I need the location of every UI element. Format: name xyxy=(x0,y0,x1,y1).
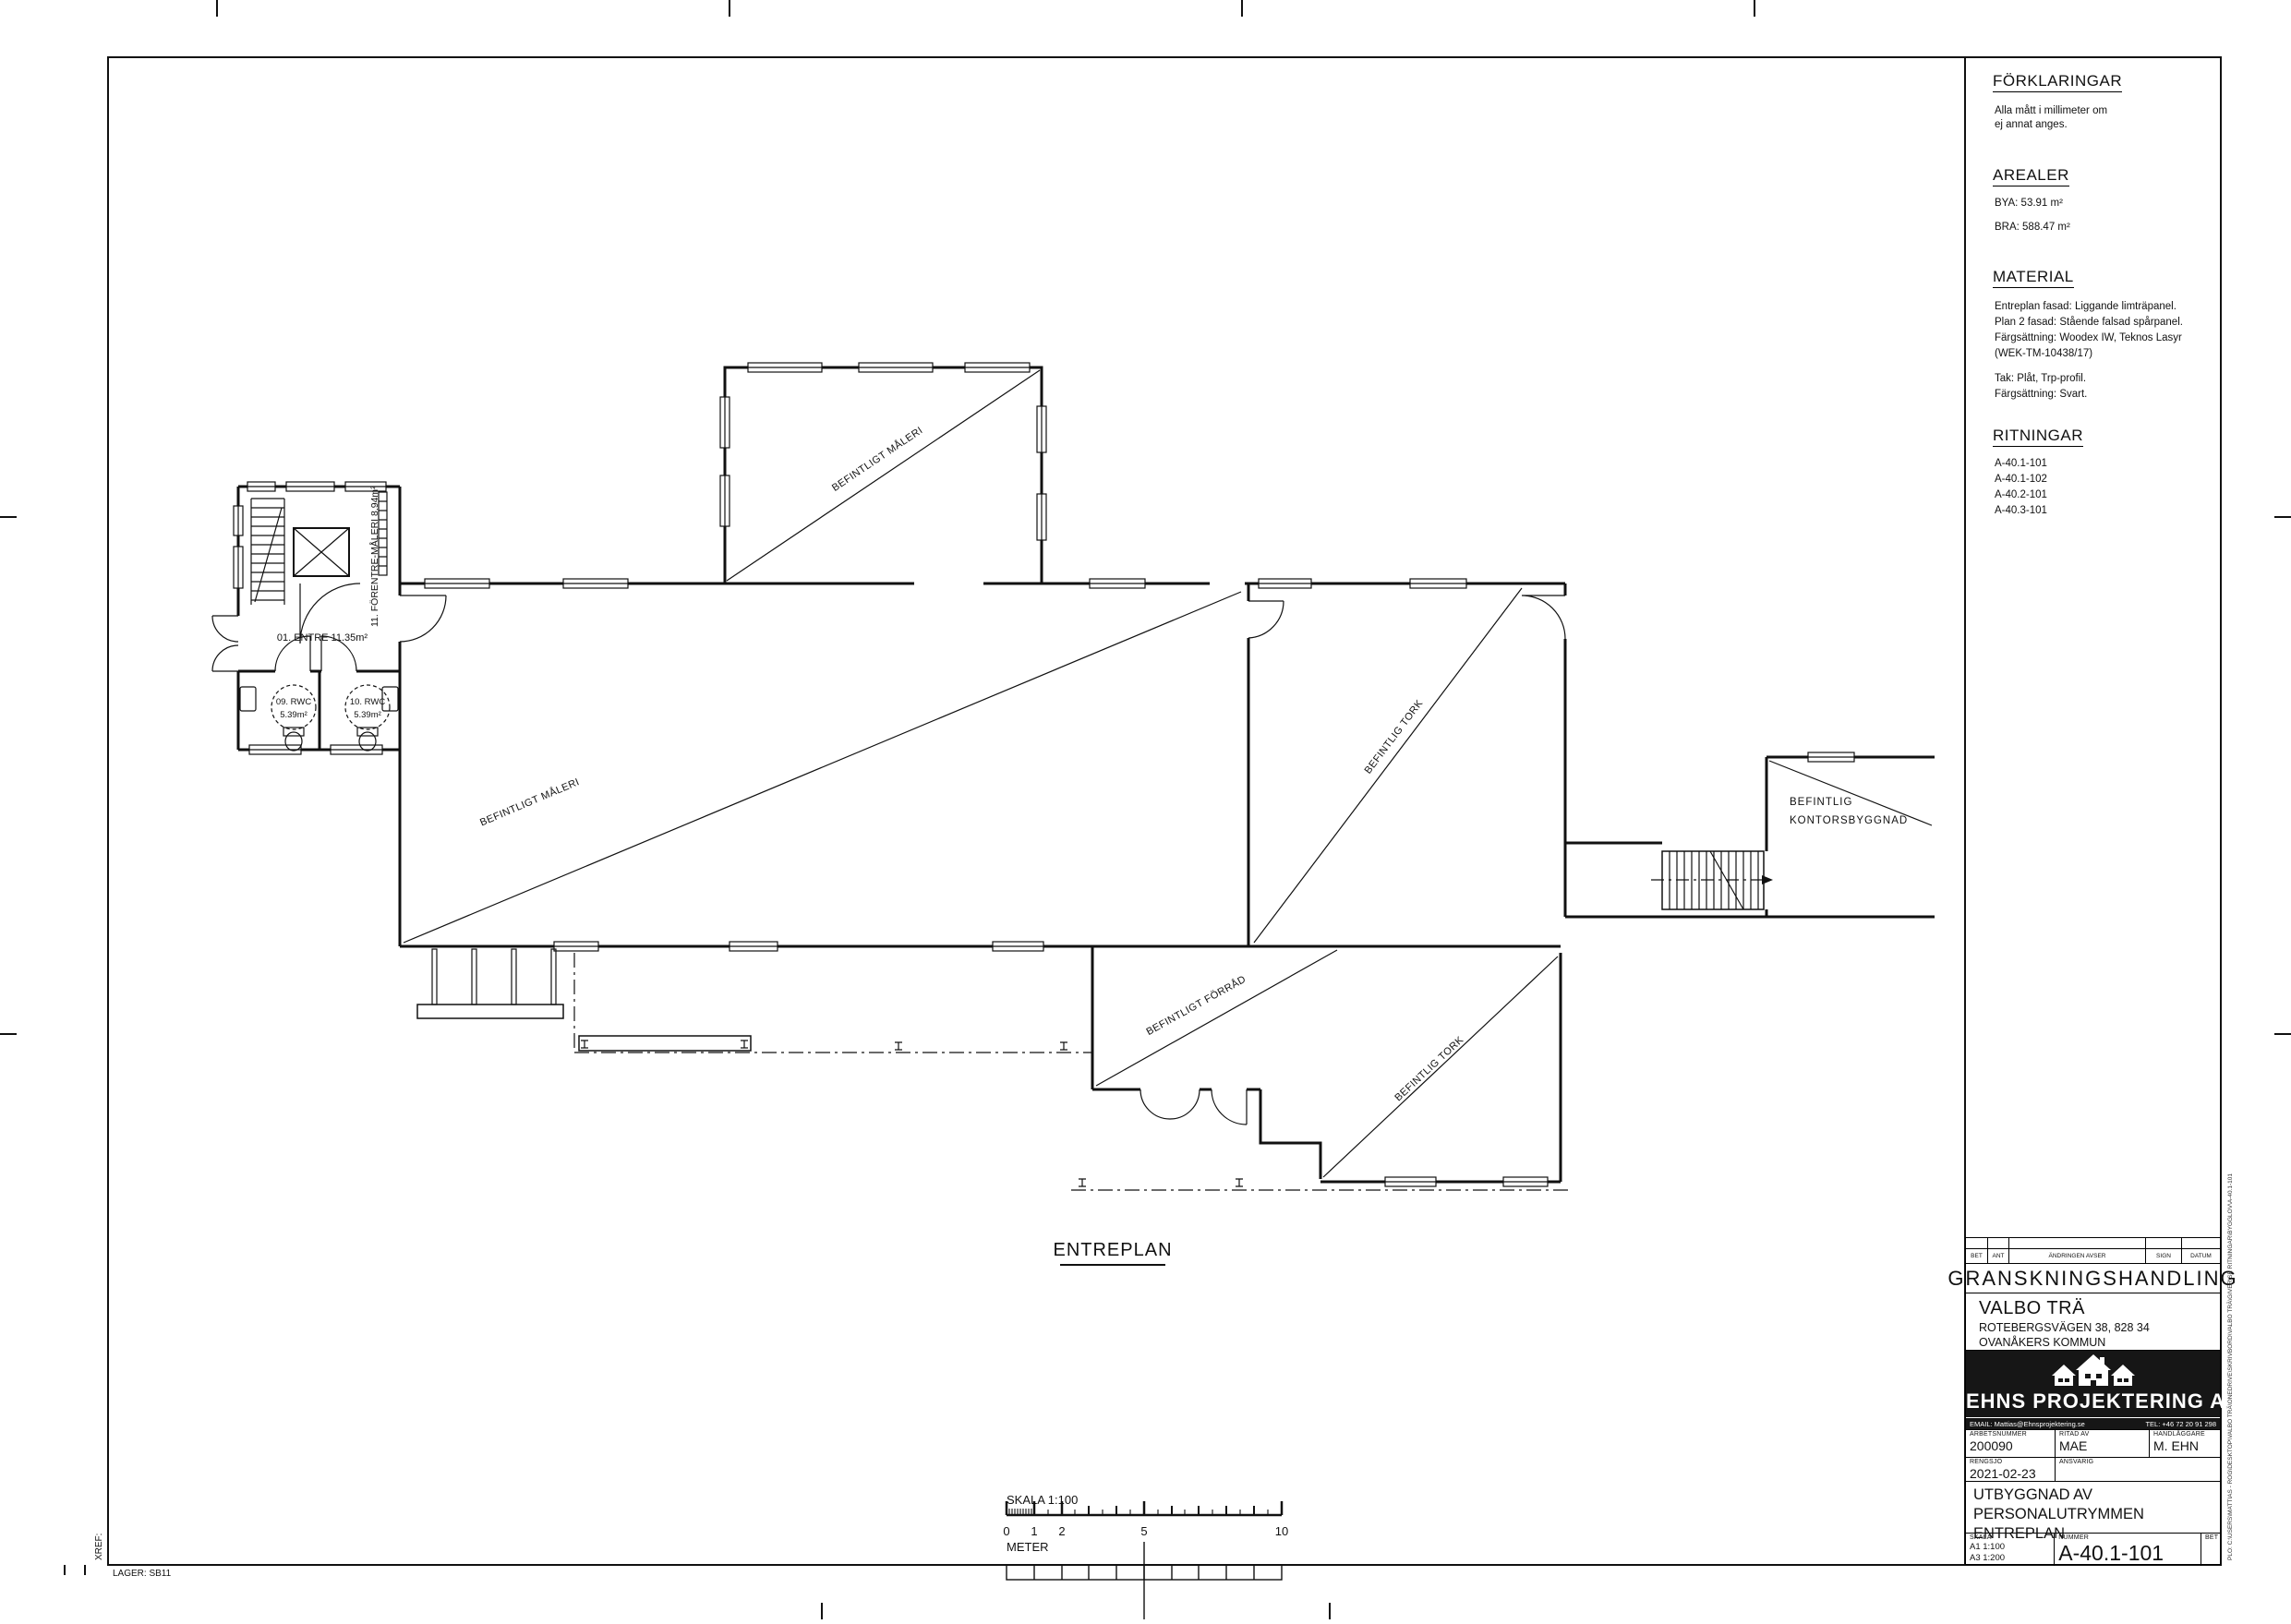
status-stamp: GRANSKNINGSHANDLING xyxy=(1966,1264,2220,1293)
legend-note-2: ej annat anges. xyxy=(1995,119,2068,130)
revision-header: BET ANT ÄNDRINGEN AVSER SIGN DATUM xyxy=(1966,1249,2220,1264)
scale-tick-5: 5 xyxy=(1140,1524,1147,1538)
company-name: EHNS PROJEKTERING AB xyxy=(1966,1389,2220,1413)
scale-tick-0: 0 xyxy=(1003,1524,1009,1538)
arbetsnummer-label: ARBETSNUMMER xyxy=(1970,1431,2051,1438)
drawing-title: ENTREPLAN xyxy=(1053,1240,1172,1265)
scale-unit: METER xyxy=(1007,1540,1049,1554)
ritningar-item-3: A-40.2-101 xyxy=(1995,489,2047,500)
rengsjo-value: 2021-02-23 xyxy=(1970,1466,2051,1481)
sheet-frame xyxy=(0,0,2291,1619)
bet-label: BET xyxy=(2205,1534,2216,1541)
ansvarig-label: ANSVARIG xyxy=(2059,1459,2216,1465)
scale-tick-2: 2 xyxy=(1058,1524,1065,1538)
houses-logo-icon xyxy=(2047,1353,2140,1393)
lager-label: LAGER: SB11 xyxy=(113,1569,172,1579)
rev-col-datum: DATUM xyxy=(2182,1249,2220,1263)
plot-path-annotation: PLO: C:\USERS\MATTIAS - ROG\DESKTOP\VALB… xyxy=(2227,1198,2234,1560)
handlaggare-label: HANDLÄGGARE xyxy=(2153,1431,2216,1438)
ritningar-title: RITNINGAR xyxy=(1993,427,2083,447)
legend-title: FÖRKLARINGAR xyxy=(1993,72,2122,92)
rev-col-bet: BET xyxy=(1966,1249,1988,1263)
skala-a1: A1 1:100 xyxy=(1970,1542,2050,1552)
company-email: EMAIL: Mattias@Ehnsprojektering.se xyxy=(1970,1420,2085,1428)
room-label-rwc10: 10. RWC xyxy=(350,697,386,707)
room-label-maleri-main: BEFINTLIGT MÅLERI xyxy=(478,776,582,828)
plan-title: ENTREPLAN xyxy=(1053,1240,1172,1260)
scale-tick-10: 10 xyxy=(1275,1524,1288,1538)
window-symbols xyxy=(234,363,1854,1186)
rev-col-avser: ÄNDRINGEN AVSER xyxy=(2009,1249,2146,1263)
rengsjo-label: RENGSJÖ xyxy=(1970,1459,2051,1465)
room-label-maleri-upper: BEFINTLIGT MÅLERI xyxy=(829,424,924,494)
revision-row-empty xyxy=(1966,1238,2220,1249)
arealer-title: AREALER xyxy=(1993,166,2069,186)
client-city: OVANÅKERS KOMMUN xyxy=(1979,1336,2150,1349)
ritningar-item-2: A-40.1-102 xyxy=(1995,474,2047,485)
material-line-1: Entreplan fasad: Liggande limträpanel. xyxy=(1995,301,2176,312)
ritningar-item-1: A-40.1-101 xyxy=(1995,458,2047,469)
arealer-bya: BYA: 53.91 m² xyxy=(1995,198,2063,209)
detail-lines xyxy=(212,370,1932,1186)
scale-tick-1: 1 xyxy=(1031,1524,1037,1538)
room-label-entre: 01. ENTRE 11.35m² xyxy=(277,632,368,644)
company-logo-block: EHNS PROJEKTERING AB EMAIL: Mattias@Ehns… xyxy=(1966,1351,2220,1430)
xref-label: XREF: xyxy=(94,1534,104,1560)
material-line-6: Färgsättning: Svart. xyxy=(1995,389,2087,400)
room-area-rwc09: 5.39m² xyxy=(280,710,307,720)
room-label-tork-2: BEFINTLIG TORK xyxy=(1393,1034,1465,1103)
rev-col-ant: ANT xyxy=(1988,1249,2009,1263)
room-label-rwc09: 09. RWC xyxy=(276,697,312,707)
handlaggare-value: M. EHN xyxy=(2153,1438,2216,1453)
fields-row-2: RENGSJÖ 2021-02-23 ANSVARIG xyxy=(1966,1458,2220,1482)
project-title-line-1: UTBYGGNAD AV PERSONALUTRYMMEN xyxy=(1973,1486,2220,1524)
project-title-block: UTBYGGNAD AV PERSONALUTRYMMEN ENTREPLAN xyxy=(1966,1482,2220,1534)
ritad-av-value: MAE xyxy=(2059,1438,2145,1453)
material-title: MATERIAL xyxy=(1993,268,2074,288)
room-label-kontor-1: BEFINTLIG xyxy=(1790,797,1852,808)
material-line-2: Plan 2 fasad: Stående falsad spårpanel. xyxy=(1995,317,2183,328)
room-label-tork-1: BEFINTLIG TORK xyxy=(1363,698,1426,776)
material-line-3: Färgsättning: Woodex IW, Teknos Lasyr xyxy=(1995,332,2182,343)
material-line-4: (WEK-TM-10438/17) xyxy=(1995,348,2092,359)
title-block: BET ANT ÄNDRINGEN AVSER SIGN DATUM GRANS… xyxy=(1965,1237,2221,1565)
arbetsnummer-value: 200090 xyxy=(1970,1438,2051,1453)
company-tel: TEL: +46 72 20 91 298 xyxy=(2145,1420,2216,1428)
client-address: ROTEBERGSVÄGEN 38, 828 34 xyxy=(1979,1321,2150,1334)
rev-col-sign: SIGN xyxy=(2146,1249,2182,1263)
room-label-forrad: BEFINTLIGT FÖRRÅD xyxy=(1144,973,1248,1038)
skala-label: SKALA xyxy=(1970,1534,2050,1541)
material-line-5: Tak: Plåt, Trp-profil. xyxy=(1995,373,2086,384)
fields-row-1: ARBETSNUMMER 200090 RITAD AV MAE HANDLÄG… xyxy=(1966,1430,2220,1458)
nummer-value: A-40.1-101 xyxy=(2058,1541,2197,1566)
room-label-kontor-2: KONTORSBYGGNAD xyxy=(1790,815,1908,826)
room-area-rwc10: 5.39m² xyxy=(354,710,381,720)
ritad-av-label: RITAD AV xyxy=(2059,1431,2145,1438)
scale-label: SKALA 1:100 xyxy=(1007,1493,1078,1507)
drawing-sheet: 11. FÖRENTRE-MÅLERI 8.94m² 01. ENTRE 11.… xyxy=(0,0,2291,1619)
client-block: VALBO TRÄ ROTEBERGSVÄGEN 38, 828 34 OVAN… xyxy=(1966,1293,2220,1351)
nummer-label: NUMMER xyxy=(2058,1534,2197,1541)
scale-bar: SKALA 1:100 xyxy=(1003,1493,1288,1619)
arealer-bra: BRA: 588.47 m² xyxy=(1995,222,2070,233)
room-label-forentre: 11. FÖRENTRE-MÅLERI 8.94m² xyxy=(368,486,380,627)
floor-plan-drawing: 11. FÖRENTRE-MÅLERI 8.94m² 01. ENTRE 11.… xyxy=(0,0,2291,1619)
legend-panel: FÖRKLARINGAR Alla mått i millimeter om e… xyxy=(1965,57,2221,1237)
client-name: VALBO TRÄ xyxy=(1979,1298,2150,1319)
walls xyxy=(238,367,1935,1182)
legend-note-1: Alla mått i millimeter om xyxy=(1995,105,2107,116)
ritningar-item-4: A-40.3-101 xyxy=(1995,505,2047,516)
fields-row-3: SKALA A1 1:100 A3 1:200 NUMMER A-40.1-10… xyxy=(1966,1534,2220,1566)
skala-a3: A3 1:200 xyxy=(1970,1553,2050,1563)
